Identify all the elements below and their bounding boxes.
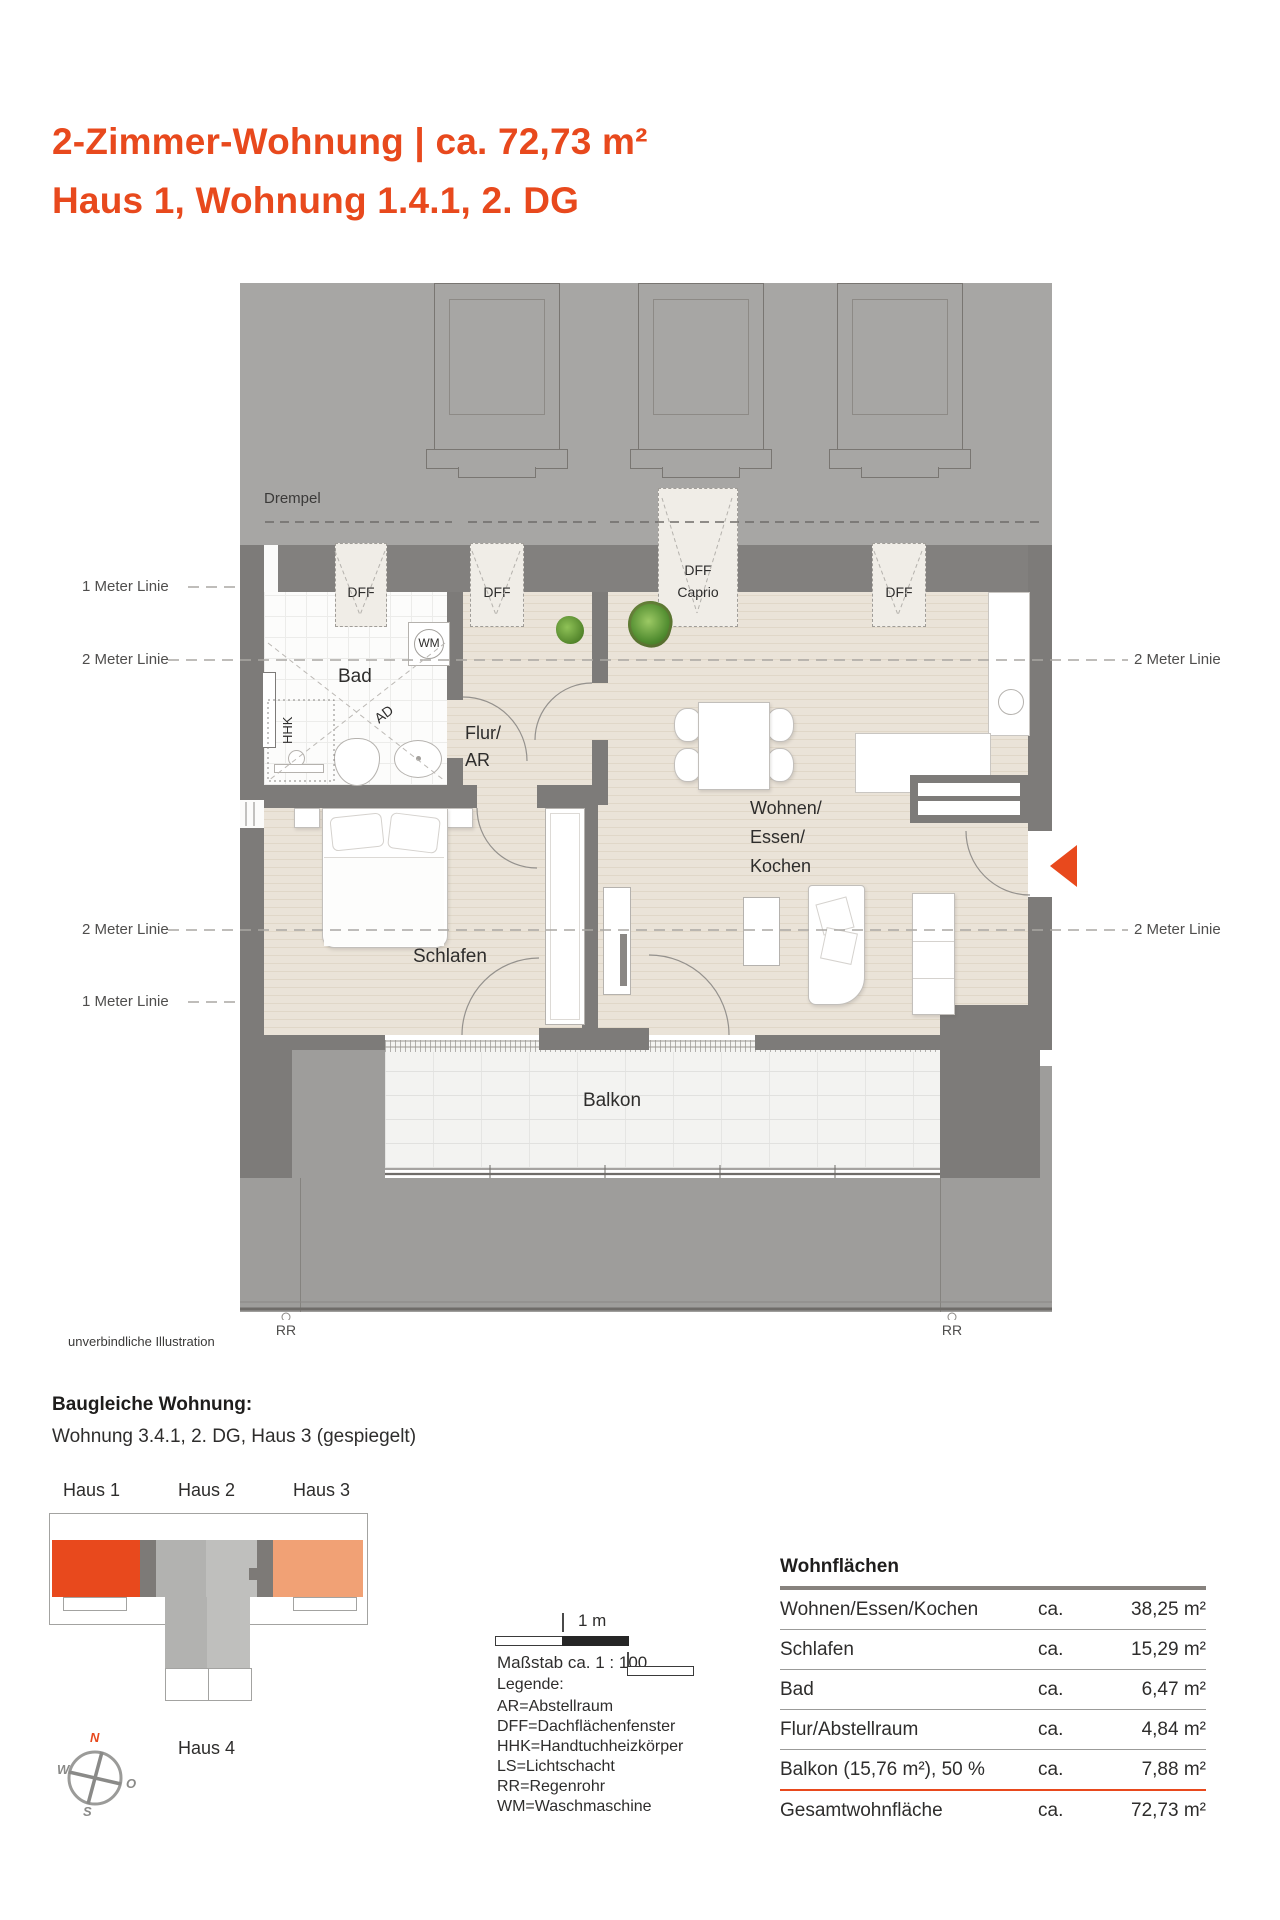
siteplan-haus4-stem <box>207 1597 250 1668</box>
meter-line-label: 2 Meter Linie <box>1134 651 1221 668</box>
siteplan-haus4-stem <box>165 1597 207 1668</box>
area-value: 4,84 m² <box>1096 1719 1206 1741</box>
shower-area <box>268 700 334 781</box>
rr-label: RR <box>272 1322 300 1338</box>
siteplan-tab <box>293 1597 357 1611</box>
siteplan-stem-foot <box>165 1668 210 1701</box>
area-ca: ca. <box>1038 1719 1096 1741</box>
areas-table: Wohnen/Essen/Kochen ca. 38,25 m² Schlafe… <box>780 1590 1206 1830</box>
meter-line-label: 1 Meter Linie <box>82 578 169 595</box>
area-value: 72,73 m² <box>1096 1800 1206 1822</box>
siteplan-notch <box>249 1568 257 1580</box>
meter-line-label: 1 Meter Linie <box>82 993 169 1010</box>
title-line1: 2-Zimmer-Wohnung | ca. 72,73 m² <box>52 112 648 171</box>
title-line2: Haus 1, Wohnung 1.4.1, 2. DG <box>52 171 648 230</box>
compass-s: S <box>83 1804 92 1819</box>
legend-item: LS=Lichtschacht <box>497 1757 615 1777</box>
table-row: Bad ca. 6,47 m² <box>780 1670 1206 1710</box>
table-row-balkon: Balkon (15,76 m²), 50 % ca. 7,88 m² <box>780 1750 1206 1791</box>
room-label-balkon: Balkon <box>560 1090 664 1112</box>
rain-pipe-icon <box>948 1313 956 1320</box>
siteplan-haus2-block <box>156 1540 206 1597</box>
areas-heading: Wohnflächen <box>780 1556 899 1578</box>
meter-line-label: 2 Meter Linie <box>82 921 169 938</box>
room-label-schlafen: Schlafen <box>413 946 487 968</box>
siteplan-label-haus3: Haus 3 <box>293 1480 350 1501</box>
table-row: Schlafen ca. 15,29 m² <box>780 1630 1206 1670</box>
siteplan-label-haus1: Haus 1 <box>63 1480 120 1501</box>
hhk-label: HHK <box>280 717 295 744</box>
compass-n: N <box>90 1730 99 1745</box>
area-ca: ca. <box>1038 1759 1096 1781</box>
legend-item: WM=Waschmaschine <box>497 1797 652 1817</box>
west-window-glazing <box>246 802 254 826</box>
compass-w: W <box>57 1762 69 1777</box>
compass-icon <box>58 1736 132 1820</box>
siteplan-stem-foot <box>208 1668 252 1701</box>
balcony-railing <box>385 1165 940 1178</box>
area-ca: ca. <box>1038 1599 1096 1621</box>
wohnen-line1: Wohnen/ <box>750 798 822 818</box>
area-name: Balkon (15,76 m²), 50 % <box>780 1759 1038 1781</box>
flur-line2: AR <box>465 750 490 770</box>
scalebar-tick2 <box>627 1652 629 1666</box>
disclaimer: unverbindliche Illustration <box>68 1334 215 1349</box>
area-value: 38,25 m² <box>1096 1599 1206 1621</box>
drempel-label: Drempel <box>264 490 321 507</box>
table-row-total: Gesamtwohnfläche ca. 72,73 m² <box>780 1791 1206 1830</box>
rain-pipe-icon <box>282 1313 290 1320</box>
legend-item: AR=Abstellraum <box>497 1697 613 1717</box>
rr-label: RR <box>938 1322 966 1338</box>
table-row: Wohnen/Essen/Kochen ca. 38,25 m² <box>780 1590 1206 1630</box>
bath-diagonals <box>268 643 445 781</box>
siteplan-label-haus4: Haus 4 <box>178 1738 235 1759</box>
siteplan-haus3-block <box>273 1540 363 1597</box>
area-name: Bad <box>780 1679 1038 1701</box>
scalebar-white <box>495 1636 564 1646</box>
variant-heading: Baugleiche Wohnung: <box>52 1394 252 1416</box>
siteplan-haus1-block <box>52 1540 140 1597</box>
legend-heading: Legende: <box>497 1675 564 1695</box>
room-label-wohnen: Wohnen/Essen/Kochen <box>750 794 822 881</box>
siteplan-label-haus2: Haus 2 <box>178 1480 235 1501</box>
plan-linework <box>60 283 1240 1320</box>
variant-text: Wohnung 3.4.1, 2. DG, Haus 3 (gespiegelt… <box>52 1426 416 1448</box>
door-sills <box>385 1041 755 1047</box>
legend-item: RR=Regenrohr <box>497 1777 605 1797</box>
legend-item: HHK=Handtuchheizkörper <box>497 1737 683 1757</box>
scalebar-black <box>562 1636 629 1646</box>
scalebar-white2 <box>627 1666 694 1676</box>
area-ca: ca. <box>1038 1639 1096 1661</box>
siteplan-connector <box>257 1540 273 1597</box>
area-value: 7,88 m² <box>1096 1759 1206 1781</box>
page-title: 2-Zimmer-Wohnung | ca. 72,73 m² Haus 1, … <box>52 112 648 230</box>
floorplan-page: 2-Zimmer-Wohnung | ca. 72,73 m² Haus 1, … <box>0 0 1280 1920</box>
meter-line-label: 2 Meter Linie <box>82 651 169 668</box>
siteplan-tab <box>63 1597 127 1611</box>
entrance-arrow-icon <box>1050 845 1077 887</box>
table-row: Flur/Abstellraum ca. 4,84 m² <box>780 1710 1206 1750</box>
compass-o: O <box>126 1776 136 1791</box>
meter-lines <box>168 587 1128 1002</box>
door-arcs <box>462 683 1030 1035</box>
area-ca: ca. <box>1038 1679 1096 1701</box>
legend-item: DFF=Dachflächenfenster <box>497 1717 675 1737</box>
scalebar-tick <box>562 1613 564 1632</box>
scalebar-label: 1 m <box>578 1611 606 1631</box>
area-name: Flur/Abstellraum <box>780 1719 1038 1741</box>
room-label-bad: Bad <box>338 666 372 688</box>
area-name: Schlafen <box>780 1639 1038 1661</box>
area-value: 15,29 m² <box>1096 1639 1206 1661</box>
room-label-flur: Flur/AR <box>465 720 501 774</box>
wohnen-line2: Essen/ <box>750 827 805 847</box>
area-name: Wohnen/Essen/Kochen <box>780 1599 1038 1621</box>
window-chevrons <box>335 498 922 615</box>
scalebar-caption: Maßstab ca. 1 : 100 <box>497 1653 647 1673</box>
siteplan-connector <box>140 1540 156 1597</box>
area-value: 6,47 m² <box>1096 1679 1206 1701</box>
area-ca: ca. <box>1038 1800 1096 1822</box>
wohnen-line3: Kochen <box>750 856 811 876</box>
meter-line-label: 2 Meter Linie <box>1134 921 1221 938</box>
area-name: Gesamtwohnfläche <box>780 1800 1038 1822</box>
flur-line1: Flur/ <box>465 723 501 743</box>
